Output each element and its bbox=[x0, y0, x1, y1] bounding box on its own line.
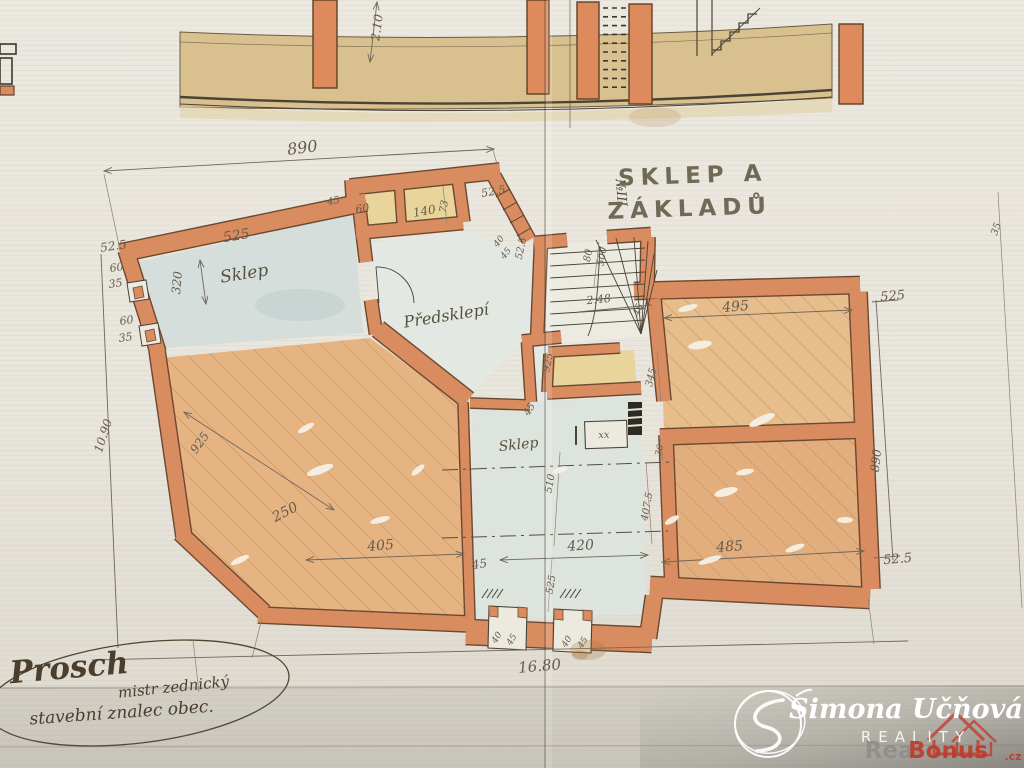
vent-ladder-symbol bbox=[628, 402, 642, 435]
wall-segment bbox=[660, 430, 866, 437]
dim-320-left: 320 bbox=[169, 270, 185, 294]
floor-plan-photo: 2.10890525Sklep52.56035320603510.9045601… bbox=[0, 0, 1024, 768]
wall-segment bbox=[527, 342, 531, 402]
dim-1680-bottom: 16.80 bbox=[517, 655, 562, 677]
decor-shape bbox=[255, 289, 345, 321]
wall-segment bbox=[650, 587, 870, 598]
wall-segment bbox=[634, 285, 860, 291]
wall-segment bbox=[258, 615, 470, 624]
wall-segment bbox=[666, 435, 672, 589]
dim-890-top: 890 bbox=[286, 136, 319, 159]
decor-shape bbox=[518, 607, 527, 618]
decor-shape bbox=[313, 0, 337, 88]
watermark-name: Simona Učňová bbox=[789, 694, 1023, 725]
decor-shape bbox=[145, 329, 156, 342]
decor-shape bbox=[583, 610, 592, 621]
wall-segment bbox=[522, 337, 561, 341]
dim-60-room: 60 bbox=[354, 201, 370, 216]
decor-shape bbox=[489, 606, 498, 617]
dim-485-wing: 485 bbox=[715, 538, 744, 556]
dim-525-right-top: 525 bbox=[880, 288, 906, 305]
decor-shape bbox=[629, 4, 652, 104]
paper-stain bbox=[629, 107, 681, 127]
symbol-xx: xx bbox=[598, 430, 610, 442]
wall-segment bbox=[352, 180, 354, 212]
crease-highlight bbox=[546, 0, 552, 768]
wall-niche-left-2 bbox=[139, 323, 161, 346]
decor-shape bbox=[554, 609, 563, 620]
wall-segment bbox=[399, 185, 402, 229]
decor-shape bbox=[577, 2, 599, 99]
decor-shape bbox=[0, 86, 14, 95]
dim-420-center: 420 bbox=[566, 537, 595, 555]
dim-80-stair: 80 bbox=[582, 248, 595, 263]
wall-segment bbox=[549, 348, 620, 352]
wall-segment bbox=[648, 596, 654, 638]
decor-shape bbox=[628, 417, 642, 418]
dim-890-right: 890 bbox=[868, 448, 884, 473]
dim-35-left-2: 35 bbox=[118, 330, 134, 345]
watermark-bonus: Bonus bbox=[908, 738, 988, 764]
dim-60-left-2: 60 bbox=[119, 313, 135, 328]
dim-60-left-1: 60 bbox=[109, 260, 125, 275]
wall-segment bbox=[458, 178, 464, 222]
dim-405-room: 405 bbox=[366, 537, 395, 555]
paper-stain bbox=[572, 650, 588, 660]
dim-525-right-bottom: 52.5 bbox=[883, 551, 913, 568]
dim-45-bottom-left: 45 bbox=[470, 556, 488, 572]
decor-shape bbox=[628, 409, 642, 410]
watermark-cz: .cz bbox=[1004, 750, 1021, 763]
dim-248-stair: 2.48 bbox=[585, 292, 612, 308]
decor-shape bbox=[628, 425, 642, 426]
dim-495-wing: 495 bbox=[721, 298, 750, 316]
dim-35-left-1: 35 bbox=[108, 276, 124, 291]
wall-niche-left-1 bbox=[127, 280, 149, 302]
wall-segment bbox=[537, 242, 541, 341]
dim-73: 73 bbox=[438, 199, 451, 213]
decor-shape bbox=[839, 24, 863, 104]
decor-shape bbox=[133, 286, 144, 299]
plan-title-line1: SKLEP A bbox=[618, 160, 768, 191]
dim-45-top: 45 bbox=[325, 195, 340, 208]
wall-segment bbox=[607, 234, 651, 237]
decor-shape bbox=[837, 517, 853, 523]
wall-segment bbox=[547, 388, 641, 393]
wall-segment bbox=[470, 403, 530, 405]
decor-shape bbox=[668, 437, 866, 592]
wall-segment bbox=[371, 300, 376, 334]
